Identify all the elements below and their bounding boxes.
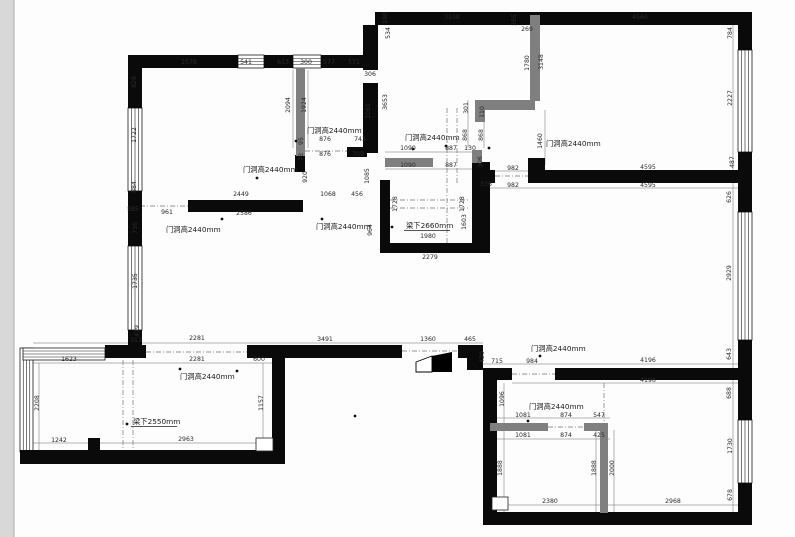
leader-dot (256, 177, 259, 180)
dimension-label: 456 (351, 191, 363, 198)
dimension-label: 4595 (640, 182, 656, 189)
leader-dot (488, 147, 491, 150)
windows-layer (20, 50, 752, 483)
dimension-label: 1722 (131, 127, 138, 143)
door-height-label: 门洞高2440mm (180, 372, 235, 381)
dimension-label: 1081 (515, 432, 531, 439)
leader-dot (179, 368, 182, 371)
wall (380, 180, 390, 253)
floor-plan-page: 2578541613300577571828172288458573617354… (0, 0, 795, 537)
dimension-label: 487 (729, 156, 736, 168)
dimension-label: 3653 (382, 94, 389, 110)
door-height-label: 门洞高2440mm (316, 222, 371, 231)
dimension-label: 4196 (640, 357, 656, 364)
fixture-outline (256, 438, 273, 451)
dimension-label: 1780 (524, 55, 531, 71)
dimension-label: 4560 (632, 14, 648, 21)
dimension-label: 1085 (364, 168, 371, 184)
leader-dot (527, 420, 530, 423)
dimension-label: 2586 (236, 210, 252, 217)
dimension-label: 688 (726, 387, 733, 399)
dimension-label: 1623 (61, 356, 77, 363)
dimension-label: 95 (298, 137, 305, 145)
dimension-label: 585 (127, 206, 139, 213)
dimension-label: 868 (478, 129, 485, 141)
dimension-label: 419 (134, 325, 141, 337)
dimension-label: 110 (479, 106, 486, 118)
wall (363, 25, 378, 70)
dimension-label: 1728 (392, 196, 399, 212)
dimension-label: 887 (445, 145, 457, 152)
dimension-label: 887 (445, 162, 457, 169)
dimension-label: 874 (560, 412, 572, 419)
wall (738, 340, 752, 420)
dimension-label: 1081 (515, 412, 531, 419)
dimension-label: 1603 (461, 214, 468, 230)
door-height-label: 门洞高2440mm (546, 139, 601, 148)
wall (247, 345, 402, 358)
floor-plan-canvas: 2578541613300577571828172288458573617354… (0, 0, 795, 537)
dimension-label: 1096 (499, 391, 506, 407)
beam-height-label: 梁下2550mm (133, 417, 180, 426)
dimension-label: 626 (726, 191, 733, 203)
dimension-label: 920 (302, 171, 309, 183)
dimension-label: 2281 (189, 356, 205, 363)
dimension-label: 2208 (34, 395, 41, 411)
dimension-label: 643 (726, 348, 733, 360)
wall (483, 512, 752, 525)
dimension-label: 1242 (51, 437, 67, 444)
leader-dot (391, 226, 394, 229)
dimension-label: 2227 (727, 90, 734, 106)
leader-dot (354, 415, 357, 418)
dimension-label: 2281 (189, 335, 205, 342)
dimension-label: 534 (385, 27, 392, 39)
leader-dot (126, 423, 129, 426)
dimension-label: 736 (132, 222, 139, 234)
dimension-label: 1157 (258, 395, 265, 411)
dimension-label: 984 (526, 358, 538, 365)
dimension-label: 4595 (640, 164, 656, 171)
leader-dot (539, 355, 542, 358)
dimension-label: 3148 (538, 54, 545, 70)
dimension-label: 2000 (609, 460, 616, 476)
dimension-label: 301 (463, 102, 470, 114)
dimension-label: 868 (462, 129, 469, 141)
dimension-label: 2968 (665, 498, 681, 505)
beam-height-label: 梁下2660mm (406, 221, 453, 230)
dimension-label: 541 (240, 59, 252, 66)
dimension-label: 306 (364, 71, 376, 78)
door-height-label: 门洞高2440mm (166, 225, 221, 234)
dimension-label: 1460 (537, 133, 544, 149)
entry-door-symbol (432, 352, 452, 372)
door-height-label: 门洞高2440mm (531, 344, 586, 353)
dimension-label: 265 (511, 14, 518, 26)
wall (531, 170, 740, 183)
dimension-label: 1888 (591, 460, 598, 476)
dimension-label: 1980 (420, 233, 436, 240)
leader-dot (236, 370, 239, 373)
dimension-label: 2963 (178, 436, 194, 443)
leader-dot (221, 218, 224, 221)
dimension-label: 884 (131, 181, 138, 193)
dimension-label: 1068 (320, 191, 336, 198)
dimension-label: 3491 (317, 336, 333, 343)
dimension-label: 600 (253, 356, 265, 363)
dimension-label: 3108 (444, 14, 460, 21)
dimension-label: 547 (593, 412, 605, 419)
door-height-label: 门洞高2440mm (405, 133, 460, 142)
wall (128, 191, 142, 246)
dimension-label: 190 (382, 12, 389, 24)
wall (528, 158, 545, 183)
dimension-label: 465 (464, 336, 476, 343)
dimension-label: 743 (354, 136, 366, 143)
fixture-outline (492, 497, 508, 510)
dimension-label: 1090 (400, 145, 416, 152)
page-margin-layer (0, 0, 14, 537)
wall (380, 243, 480, 253)
dimension-label: 73 (298, 153, 305, 161)
page-margin-strip (0, 0, 14, 537)
dimension-label: 313 (130, 337, 142, 344)
wall (483, 368, 512, 380)
door-height-label: 门洞高2440mm (243, 165, 298, 174)
dimension-label: 2578 (181, 59, 197, 66)
dimension-label: 1888 (497, 460, 504, 476)
dimension-label: 982 (507, 165, 519, 172)
dimension-label: 784 (727, 27, 734, 39)
dimension-label: 571 (348, 59, 360, 66)
dimension-label: 2449 (233, 191, 249, 198)
wall (738, 152, 752, 212)
dimension-label: 2279 (422, 254, 438, 261)
wall (272, 356, 285, 464)
new-partition-wall (490, 423, 548, 431)
dimension-label: 1735 (132, 273, 139, 289)
entry-door-symbol (416, 356, 432, 372)
dimension-label: 1360 (420, 336, 436, 343)
dimension-label: 577 (323, 59, 335, 66)
dimension-label: 1730 (727, 438, 734, 454)
dimension-label: 1061 (365, 103, 372, 119)
leader-dot (321, 218, 324, 221)
dimension-label: 876 (319, 151, 331, 158)
dimension-label: 1728 (459, 196, 466, 212)
wall (20, 450, 285, 464)
dimension-label: 4196 (640, 377, 656, 384)
dimension-label: 2094 (285, 97, 292, 113)
dimension-label: 876 (319, 136, 331, 143)
dimension-label: 2929 (726, 265, 733, 281)
dimension-label: 1090 (400, 162, 416, 169)
wall (738, 25, 752, 50)
dimension-label: 420 (479, 351, 486, 363)
dimension-label: 678 (727, 489, 734, 501)
leader-dot (295, 140, 298, 143)
dimension-label: 1924 (301, 97, 308, 113)
dimension-label: 982 (507, 182, 519, 189)
dimension-label: 874 (560, 432, 572, 439)
wall (88, 438, 100, 451)
wall (375, 12, 752, 25)
dimension-label: 715 (491, 358, 503, 365)
door-height-label: 门洞高2440mm (529, 402, 584, 411)
dimension-label: 709 (352, 151, 364, 158)
dimension-label: 2380 (542, 498, 558, 505)
dimension-label: 300 (300, 59, 312, 66)
door-height-label: 门洞高2440mm (307, 126, 362, 135)
dimension-label: 130 (464, 145, 476, 152)
dimension-label: 306 (477, 156, 484, 168)
dimension-label: 336 (480, 181, 492, 188)
dimension-label: 613 (277, 59, 289, 66)
dimension-label: 961 (161, 209, 173, 216)
dimension-label: 425 (593, 432, 605, 439)
dimension-label: 828 (131, 76, 138, 88)
dimension-label: 269 (521, 26, 533, 33)
